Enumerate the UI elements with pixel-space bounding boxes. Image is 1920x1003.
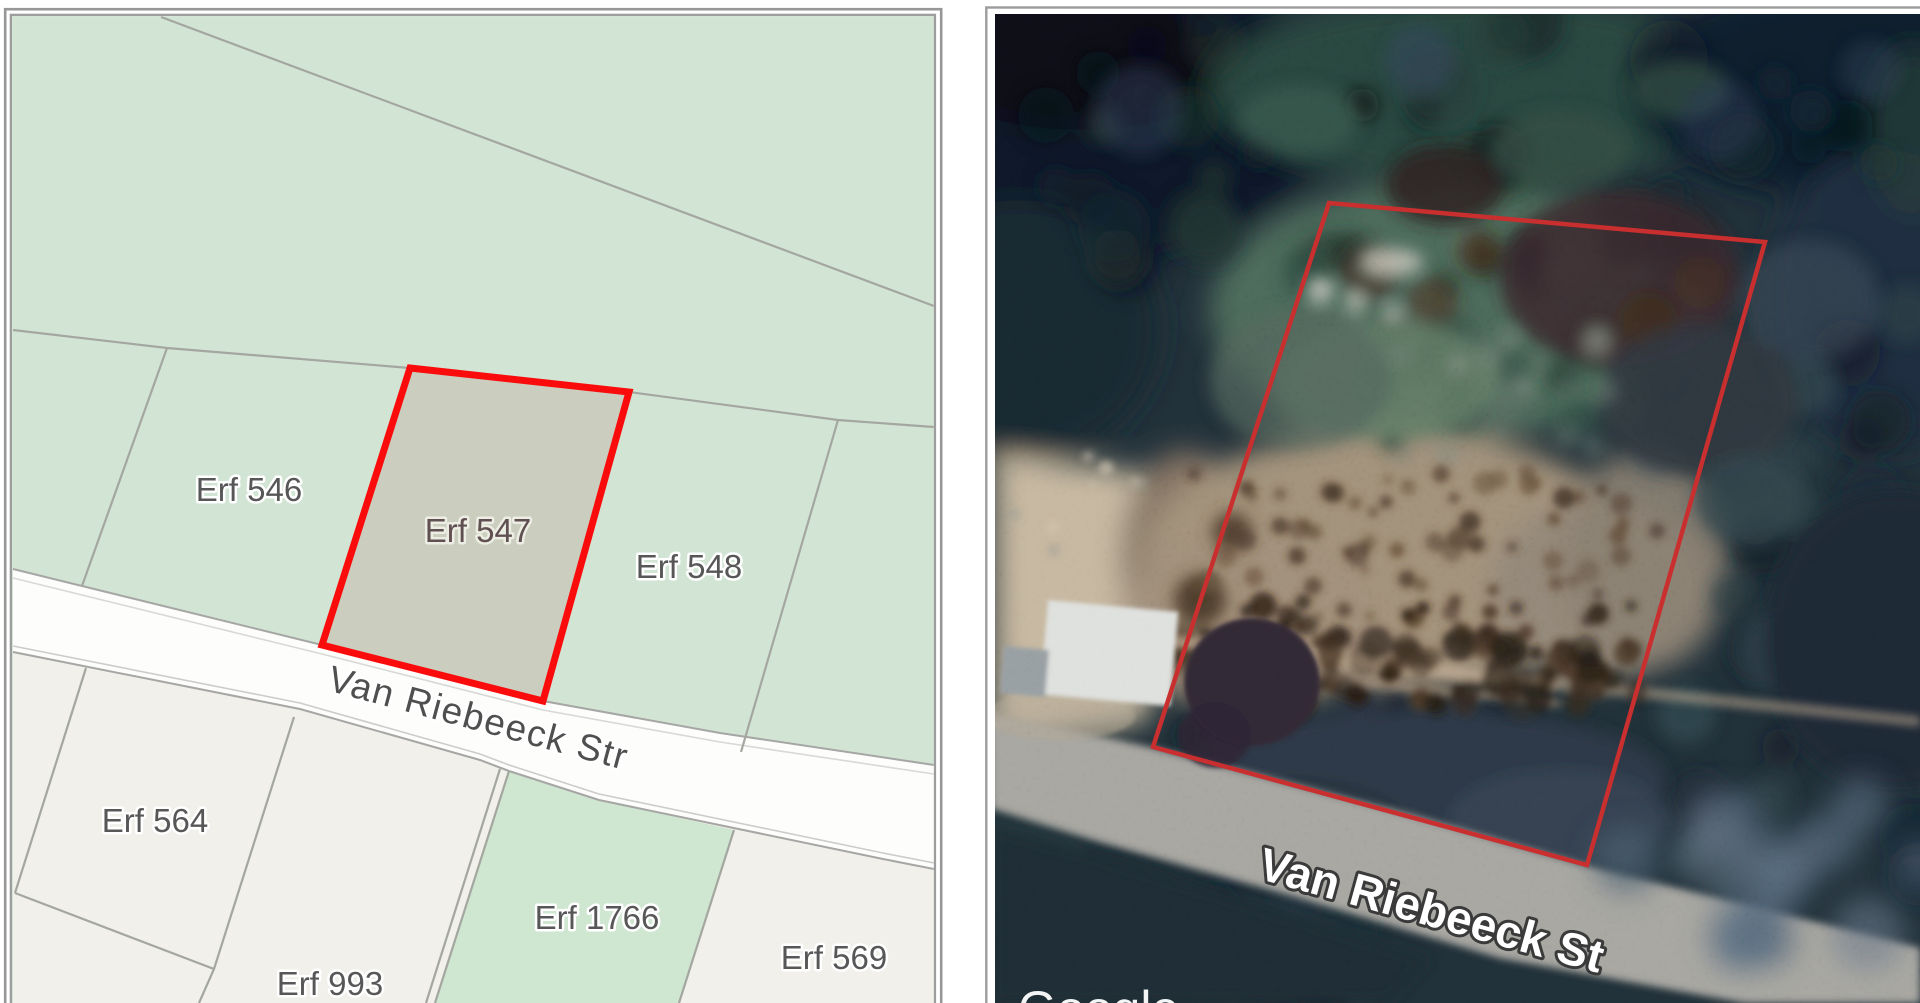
svg-text:Erf 548: Erf 548: [636, 548, 742, 585]
svg-text:Erf 546: Erf 546: [196, 471, 302, 508]
svg-text:Erf 564: Erf 564: [102, 802, 208, 839]
svg-text:Erf 1766: Erf 1766: [535, 899, 660, 936]
svg-text:Erf 569: Erf 569: [781, 939, 887, 976]
svg-text:Erf 993: Erf 993: [277, 965, 383, 1002]
svg-text:Erf 547: Erf 547: [425, 512, 531, 549]
svg-text:Google: Google: [1018, 981, 1179, 1003]
